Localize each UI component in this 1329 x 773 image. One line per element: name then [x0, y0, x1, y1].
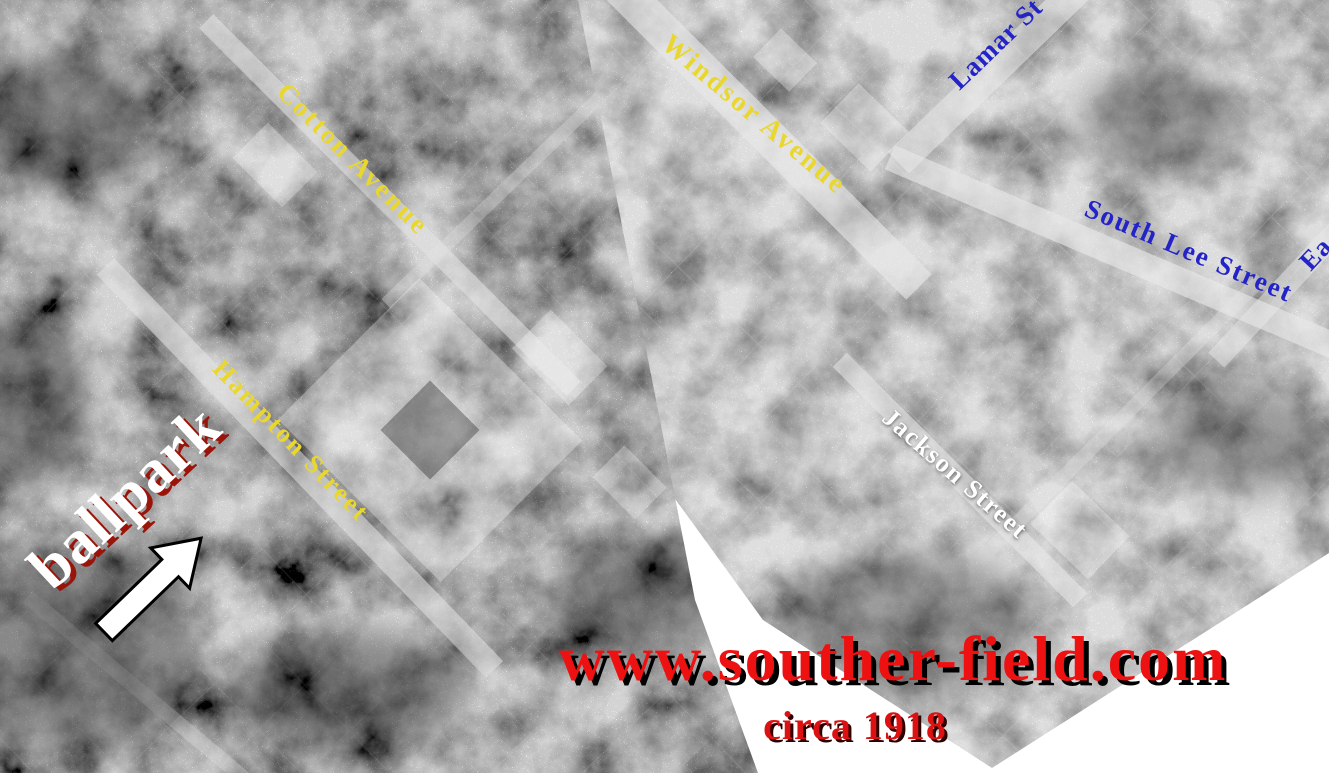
- aerial-photo-background: [0, 0, 1329, 773]
- aerial-photo-montage: Cotton Avenue Windsor Avenue Hampton Str…: [0, 0, 1329, 773]
- ballpark-arrow-icon: [86, 510, 236, 650]
